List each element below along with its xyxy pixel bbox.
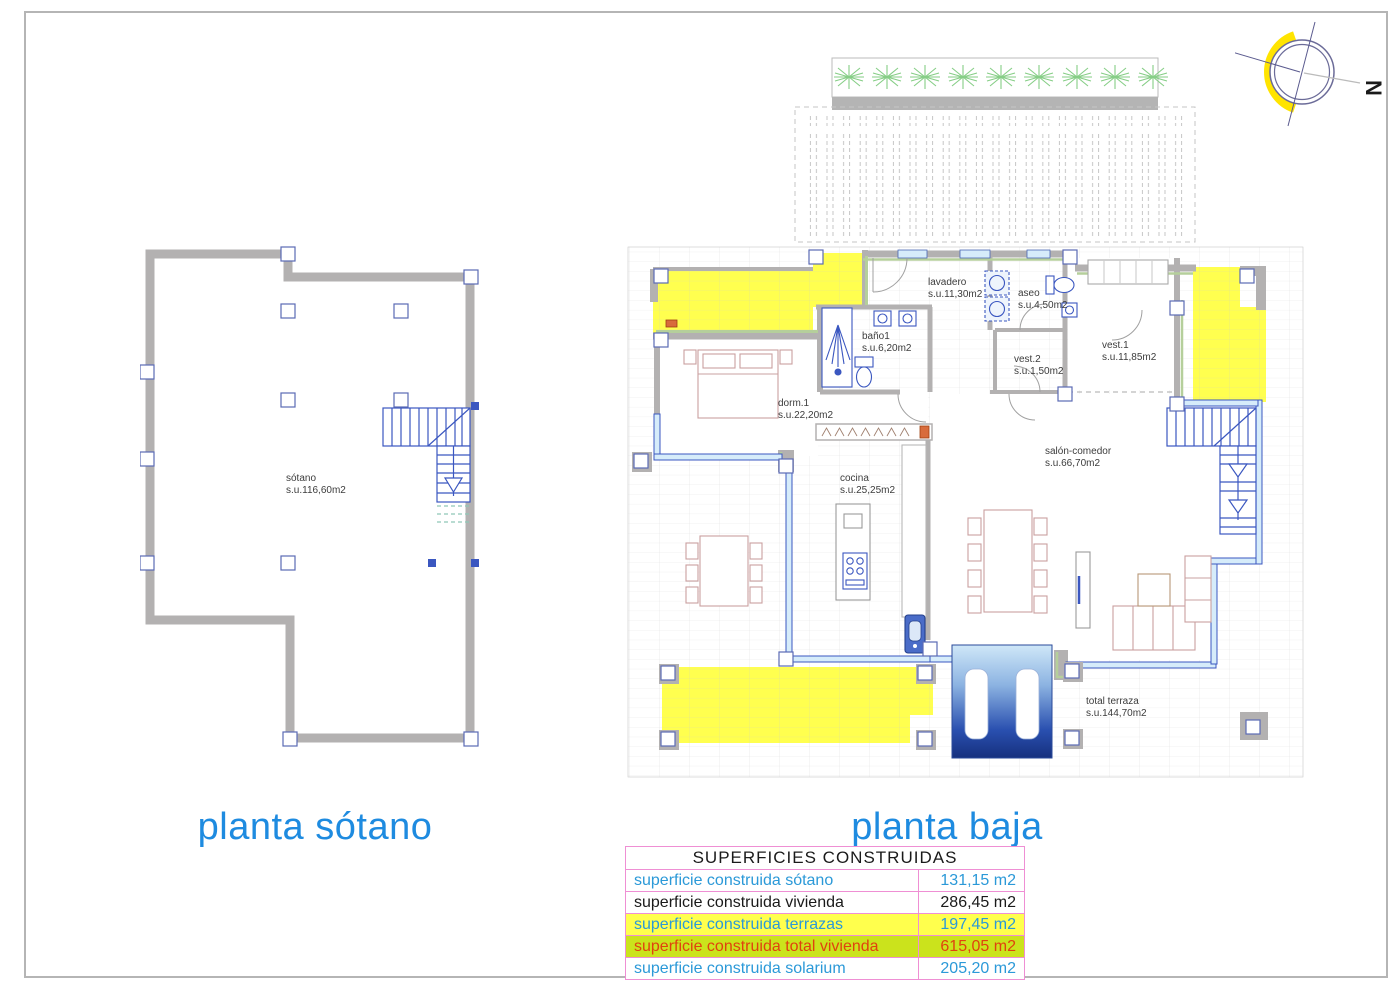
drawing-sheet: N sótanos.u.116,60m2 lavaderos.u.11,30m2… [0,0,1400,989]
table-row: superficie construida total vivienda 615… [626,936,1025,958]
louver-wall [816,424,932,440]
label-dorm1: dorm.1s.u.22,20m2 [778,398,833,421]
north-compass: N [1235,15,1385,130]
row-label: superficie construida terrazas [626,914,919,936]
areas-table-header-row: SUPERFICIES CONSTRUIDAS [626,847,1025,870]
table-row: superficie construida vivienda 286,45 m2 [626,892,1025,914]
table-row: superficie construida solarium 205,20 m2 [626,958,1025,980]
table-row: superficie construida sótano 131,15 m2 [626,870,1025,892]
label-salon-comedor: salón-comedors.u.66,70m2 [1045,446,1111,469]
pool [952,645,1052,758]
row-value: 615,05 m2 [919,936,1025,958]
ground-floor-plan [620,45,1310,795]
row-label: superficie construida total vivienda [626,936,919,958]
north-label: N [1361,80,1385,96]
row-value: 286,45 m2 [919,892,1025,914]
table-row: superficie construida terrazas 197,45 m2 [626,914,1025,936]
row-label: superficie construida sótano [626,870,919,892]
basement-walls [150,254,470,738]
row-label: superficie construida solarium [626,958,919,980]
label-cocina: cocinas.u.25,25m2 [840,473,895,496]
label-total-terraza: total terrazas.u.144,70m2 [1086,696,1147,719]
basement-title: planta sótano [150,806,480,849]
label-lavadero: lavaderos.u.11,30m2 [928,277,982,300]
planter [832,58,1168,110]
label-aseo: aseos.u.4,50m2 [1018,288,1067,311]
areas-table-title: SUPERFICIES CONSTRUIDAS [626,847,1025,870]
row-label: superficie construida vivienda [626,892,919,914]
basement-plan [140,245,485,750]
row-value: 131,15 m2 [919,870,1025,892]
label-vest2: vest.2s.u.1,50m2 [1014,354,1063,377]
pergola [795,107,1195,242]
areas-table: SUPERFICIES CONSTRUIDAS superficie const… [625,846,1025,980]
ground-title: planta baja [782,806,1112,849]
label-vest1: vest.1s.u.11,85m2 [1102,340,1156,363]
label-sotano: sótanos.u.116,60m2 [286,473,346,496]
row-value: 197,45 m2 [919,914,1025,936]
label-bano1: baño1s.u.6,20m2 [862,331,911,354]
row-value: 205,20 m2 [919,958,1025,980]
